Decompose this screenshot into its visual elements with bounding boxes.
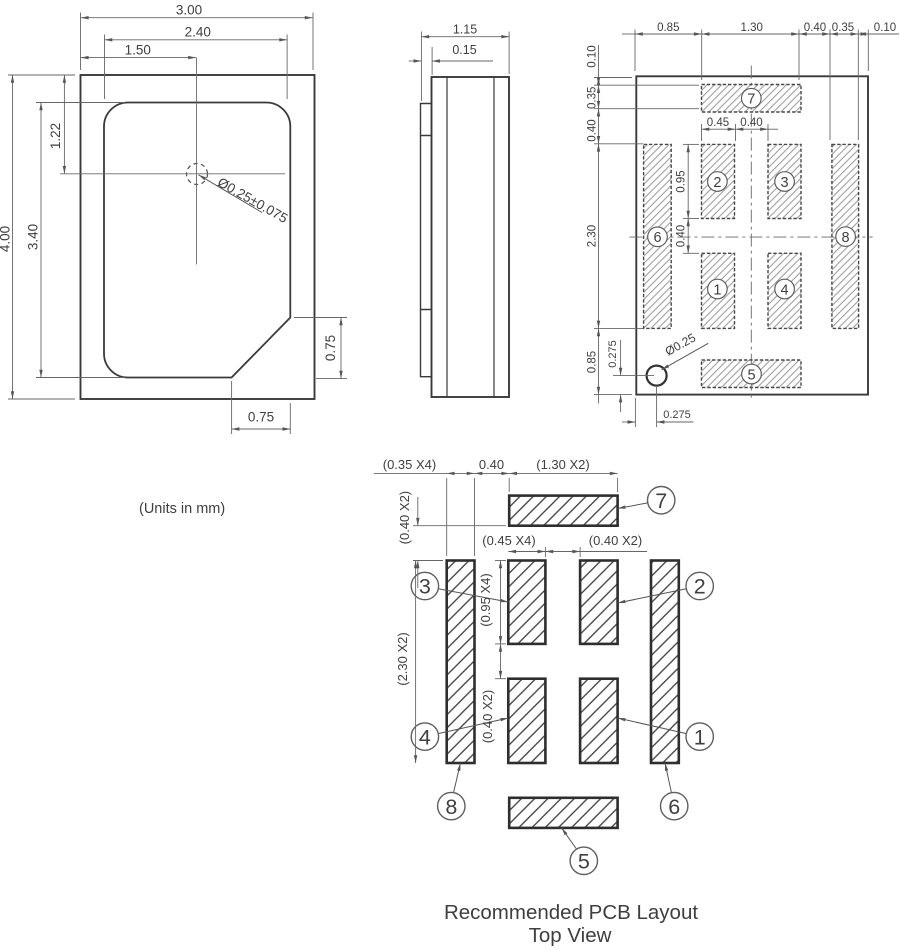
svg-text:0.75: 0.75 xyxy=(323,335,338,361)
svg-text:Recommended PCB Layout: Recommended PCB Layout xyxy=(444,901,698,924)
svg-text:0.85: 0.85 xyxy=(587,351,599,373)
svg-text:1.50: 1.50 xyxy=(125,42,151,57)
svg-text:3.00: 3.00 xyxy=(176,3,202,18)
svg-text:6: 6 xyxy=(653,230,661,246)
svg-text:0.35: 0.35 xyxy=(587,87,599,109)
svg-text:7: 7 xyxy=(655,489,667,513)
svg-text:0.10: 0.10 xyxy=(874,22,896,34)
svg-text:0.75: 0.75 xyxy=(248,410,274,425)
svg-text:4.00: 4.00 xyxy=(0,226,13,252)
svg-text:0.40: 0.40 xyxy=(587,119,599,141)
svg-text:(0.40 X2): (0.40 X2) xyxy=(397,491,412,544)
svg-text:1: 1 xyxy=(694,725,706,749)
svg-text:0.40: 0.40 xyxy=(740,117,762,129)
svg-text:2.30: 2.30 xyxy=(587,225,599,247)
svg-text:1.30: 1.30 xyxy=(741,22,763,34)
svg-text:(2.30 X2): (2.30 X2) xyxy=(395,632,410,685)
svg-text:(0.95 X4): (0.95 X4) xyxy=(478,573,493,626)
svg-text:3: 3 xyxy=(419,575,431,599)
svg-text:0.35: 0.35 xyxy=(832,22,854,34)
svg-text:0.275: 0.275 xyxy=(607,340,619,368)
svg-text:0.45: 0.45 xyxy=(707,117,729,129)
svg-text:0.15: 0.15 xyxy=(452,43,476,57)
svg-text:1: 1 xyxy=(713,282,721,298)
svg-text:2: 2 xyxy=(713,175,721,191)
svg-text:0.95: 0.95 xyxy=(676,170,688,192)
svg-text:0.10: 0.10 xyxy=(587,45,599,67)
svg-text:2: 2 xyxy=(694,575,706,599)
svg-text:6: 6 xyxy=(668,795,680,819)
svg-text:(1.30 X2): (1.30 X2) xyxy=(536,457,589,472)
svg-text:2.40: 2.40 xyxy=(185,25,211,40)
svg-text:(0.45 X4): (0.45 X4) xyxy=(482,533,535,548)
svg-text:Top View: Top View xyxy=(529,924,612,947)
svg-text:(Units in mm): (Units in mm) xyxy=(139,501,225,517)
svg-text:0.40: 0.40 xyxy=(479,457,504,472)
svg-text:(0.40 X2): (0.40 X2) xyxy=(480,690,495,743)
svg-text:0.40: 0.40 xyxy=(676,225,688,247)
svg-text:(0.35 X4): (0.35 X4) xyxy=(383,457,436,472)
svg-text:(0.40 X2): (0.40 X2) xyxy=(589,533,642,548)
svg-text:8: 8 xyxy=(445,795,457,819)
svg-text:7: 7 xyxy=(747,92,755,108)
svg-text:0.40: 0.40 xyxy=(804,22,826,34)
svg-text:1.15: 1.15 xyxy=(453,23,477,37)
svg-text:1.22: 1.22 xyxy=(48,123,63,149)
svg-text:3: 3 xyxy=(781,175,789,191)
svg-text:3.40: 3.40 xyxy=(26,224,41,250)
svg-text:0.85: 0.85 xyxy=(657,22,679,34)
svg-text:8: 8 xyxy=(842,230,850,246)
svg-text:4: 4 xyxy=(419,725,431,749)
svg-text:5: 5 xyxy=(578,850,590,874)
svg-text:4: 4 xyxy=(781,282,789,298)
svg-text:0.275: 0.275 xyxy=(663,409,691,421)
svg-text:5: 5 xyxy=(747,367,755,383)
